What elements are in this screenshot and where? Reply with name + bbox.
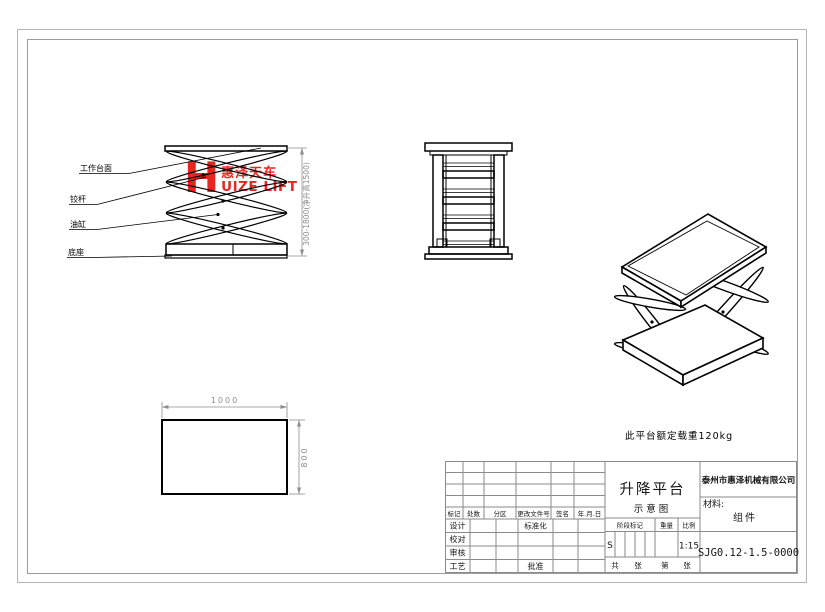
sheet-count-row: 共 张 第 张 <box>611 560 691 570</box>
label-base: 底座 <box>68 247 84 257</box>
end-elevation-view <box>415 135 520 270</box>
plan-view: 1000 800 <box>150 390 320 515</box>
cad-drawing-sheet: { "watermark": { "h": "H", "cn": "惠泽天车",… <box>0 0 825 612</box>
stage-mark-label: 阶段标记 <box>617 521 644 530</box>
rev-header-zone: 分区 <box>494 509 508 518</box>
label-arm: 铰杆 <box>70 194 86 204</box>
height-dimension: 300-1800(净升高1500) <box>287 148 311 256</box>
sig-label-design: 设计 <box>450 521 466 531</box>
company-name: 泰州市惠泽机械有限公司 <box>701 475 796 486</box>
drawing-number: SJG0.12-1.5-0000 <box>698 547 799 559</box>
sheet-unit-label: 张 <box>634 561 642 570</box>
weight-label: 重量 <box>660 522 674 530</box>
rev-header-file-no: 更改文件号 <box>517 509 550 518</box>
drawing-subtitle: 示意图 <box>634 503 672 515</box>
rated-load-note: 此平台额定载重120kg <box>625 428 733 442</box>
rev-header-date: 年.月.日 <box>578 509 602 518</box>
sig-label-check: 校对 <box>450 534 466 544</box>
depth-dimension: 800 <box>289 420 309 494</box>
standardization-label: 标准化 <box>524 521 547 531</box>
rev-header-signature: 签名 <box>556 509 569 518</box>
label-cylinder: 油缸 <box>70 219 86 229</box>
width-dimension: 1000 <box>162 396 287 418</box>
material-value: 组件 <box>733 511 757 524</box>
title-block: 标记 处数 分区 更改文件号 签名 年.月.日 设计 校对 审核 工艺 标准化 … <box>445 461 797 573</box>
sig-label-review: 审核 <box>450 548 466 558</box>
scale-label: 比例 <box>683 521 696 530</box>
material-label: 材料: <box>703 498 724 510</box>
drawing-title: 升降平台 <box>620 481 686 498</box>
plan-rectangle <box>162 420 287 494</box>
rev-header-count: 处数 <box>467 509 481 518</box>
revision-header-row: 标记 处数 分区 更改文件号 签名 年.月.日 <box>448 509 602 518</box>
scale-value: 1:15 <box>679 542 699 552</box>
stage-value: S <box>607 541 613 551</box>
front-base <box>165 244 287 258</box>
label-platform: 工作台面 <box>80 163 112 173</box>
isometric-view <box>605 200 800 395</box>
approve-label: 批准 <box>528 561 544 571</box>
height-dimension-text: 300-1800(净升高1500) <box>301 162 311 246</box>
width-dimension-text: 1000 <box>211 396 239 405</box>
front-platform <box>165 146 287 151</box>
depth-dimension-text: 800 <box>300 446 309 467</box>
sheet-total-label: 共 <box>611 561 619 570</box>
sig-label-process: 工艺 <box>450 562 466 571</box>
front-elevation-view: 工作台面 铰杆 油缸 底座 300-1800(净升高1500) <box>60 138 320 273</box>
sheet-page-label: 第 <box>661 560 669 570</box>
sheet-unit2-label: 张 <box>683 561 691 570</box>
rev-header-mark: 标记 <box>448 509 462 518</box>
